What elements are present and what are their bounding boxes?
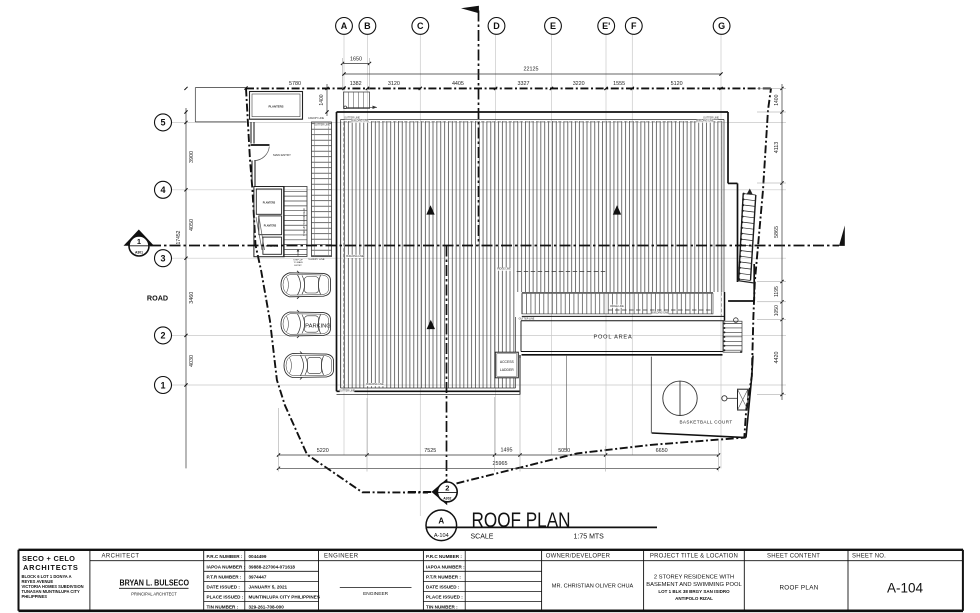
svg-text:17452: 17452 [176, 230, 182, 244]
svg-text:1: 1 [160, 380, 165, 390]
svg-text:6650: 6650 [656, 448, 668, 454]
svg-text:ROAD: ROAD [147, 294, 168, 303]
svg-text:A: A [341, 21, 348, 31]
svg-text:2: 2 [445, 483, 449, 492]
svg-text:ENTRY: ENTRY [294, 265, 302, 267]
svg-text:3: 3 [160, 254, 165, 264]
svg-text:3327: 3327 [518, 81, 530, 87]
svg-text:5780: 5780 [289, 81, 301, 87]
svg-text:TO MAIN: TO MAIN [293, 261, 302, 264]
svg-text:E': E' [602, 21, 610, 31]
svg-text:0044499: 0044499 [249, 554, 267, 559]
svg-text:3900: 3900 [189, 151, 195, 163]
svg-text:E: E [550, 21, 556, 31]
svg-text:TIN NUMBER :: TIN NUMBER : [426, 605, 458, 610]
svg-text:IAPOA NUMBER :: IAPOA NUMBER : [426, 564, 465, 569]
svg-text:F: F [631, 21, 637, 31]
svg-text:GUTTER LINE: GUTTER LINE [314, 124, 330, 127]
svg-text:A: A [438, 516, 444, 525]
svg-text:PARKING: PARKING [305, 324, 331, 330]
svg-text:TIN NUMBER :: TIN NUMBER : [207, 605, 239, 610]
svg-text:39888-227004-071618: 39888-227004-071618 [249, 564, 296, 569]
svg-text:C: C [417, 21, 424, 31]
svg-text:ARCHITECTS: ARCHITECTS [23, 563, 79, 572]
svg-text:BUILDING LINE: BUILDING LINE [366, 383, 384, 386]
svg-text:MAIN ENTRY: MAIN ENTRY [273, 153, 291, 157]
svg-text:3974447: 3974447 [249, 574, 267, 579]
svg-text:4420: 4420 [774, 352, 780, 364]
svg-text:IAPOA NUMBER :: IAPOA NUMBER : [207, 564, 246, 569]
svg-text:SCALE: SCALE [471, 534, 494, 541]
svg-text:POOL AREA: POOL AREA [593, 334, 632, 340]
svg-text:ENGINEER: ENGINEER [363, 591, 389, 597]
svg-text:4030: 4030 [189, 355, 195, 367]
svg-text:1: 1 [137, 237, 141, 246]
svg-text:STEP-UP TO ROOF DECK: STEP-UP TO ROOF DECK [304, 208, 306, 236]
svg-text:ARCHITECT: ARCHITECT [102, 554, 140, 560]
svg-text:GUTTER LINE: GUTTER LINE [339, 390, 355, 393]
svg-text:JANUARY 5, 2021: JANUARY 5, 2021 [249, 585, 288, 590]
svg-text:2 STOREY RESIDENCE WITH: 2 STOREY RESIDENCE WITH [654, 575, 734, 581]
svg-text:PLANTERS: PLANTERS [263, 202, 276, 205]
svg-text:PLANTERS: PLANTERS [268, 105, 283, 109]
svg-text:3460: 3460 [189, 292, 195, 304]
svg-text:PLANTERS: PLANTERS [264, 225, 277, 228]
svg-text:SHEET NO.: SHEET NO. [852, 554, 886, 560]
svg-text:OWNER/DEVELOPER: OWNER/DEVELOPER [546, 554, 611, 560]
svg-text:D: D [493, 21, 500, 31]
svg-text:B: B [364, 21, 371, 31]
svg-text:1:75 MTS: 1:75 MTS [574, 534, 605, 541]
svg-text:CANOPY LINE: CANOPY LINE [308, 117, 324, 120]
svg-text:ANTIPOLO RIZAL: ANTIPOLO RIZAL [675, 596, 713, 601]
svg-text:LADDER: LADDER [500, 368, 514, 372]
svg-text:G: G [718, 21, 725, 31]
svg-text:7525: 7525 [424, 448, 436, 454]
svg-text:P.R.C NUMBER :: P.R.C NUMBER : [426, 554, 462, 559]
svg-text:ROOF PLAN: ROOF PLAN [472, 508, 571, 532]
svg-text:GUTTER LINE: GUTTER LINE [519, 317, 535, 320]
svg-text:BUILDING LINE: BUILDING LINE [351, 120, 369, 123]
svg-text:MR. CHRISTIAN OLIVER CHUA: MR. CHRISTIAN OLIVER CHUA [552, 584, 634, 590]
svg-text:1400: 1400 [319, 94, 325, 105]
svg-text:PLACE ISSUED :: PLACE ISSUED : [426, 595, 463, 600]
svg-text:329-261-708-000: 329-261-708-000 [249, 605, 285, 610]
svg-text:BUILDING LINE: BUILDING LINE [651, 312, 669, 315]
svg-text:4405: 4405 [452, 81, 464, 87]
svg-text:RIDGE LINE: RIDGE LINE [610, 305, 624, 308]
svg-text:P.T.R NUMBER :: P.T.R NUMBER : [426, 574, 461, 579]
svg-text:4: 4 [160, 185, 165, 195]
svg-text:STEP-UP: STEP-UP [293, 259, 303, 261]
svg-text:PRINCIPAL ARCHITECT: PRINCIPAL ARCHITECT [131, 591, 177, 596]
svg-text:BUILDING LINE: BUILDING LINE [696, 120, 714, 123]
svg-text:CANOPY LINE: CANOPY LINE [308, 258, 324, 261]
svg-text:A-104: A-104 [434, 533, 449, 539]
svg-text:MUNTINLUPA CITY PHILIPPINES: MUNTINLUPA CITY PHILIPPINES [249, 595, 320, 600]
svg-text:DATE ISSUED :: DATE ISSUED : [426, 585, 460, 590]
svg-text:A301: A301 [135, 251, 143, 255]
svg-text:SHEET CONTENT: SHEET CONTENT [767, 554, 820, 560]
svg-text:ACCESS: ACCESS [500, 360, 515, 364]
svg-text:1195: 1195 [774, 286, 780, 297]
svg-text:ENGINEER: ENGINEER [324, 554, 359, 560]
svg-text:5220: 5220 [317, 448, 329, 454]
svg-text:PLACE ISSUED :: PLACE ISSUED : [207, 595, 244, 600]
svg-text:4113: 4113 [774, 142, 780, 154]
svg-text:1650: 1650 [350, 57, 362, 63]
svg-text:RIDGE LINE: RIDGE LINE [497, 268, 511, 271]
svg-text:4050: 4050 [189, 219, 195, 231]
svg-text:ROOF PLAN: ROOF PLAN [779, 585, 818, 592]
svg-text:DATE ISSUED :: DATE ISSUED : [207, 585, 241, 590]
svg-text:5050: 5050 [558, 448, 570, 454]
svg-text:3120: 3120 [388, 81, 400, 87]
svg-text:BRYAN L. BULSECO: BRYAN L. BULSECO [120, 579, 190, 588]
svg-text:LOT 1 BLK 38 BRGY SAN ISIDRO: LOT 1 BLK 38 BRGY SAN ISIDRO [658, 589, 730, 594]
svg-text:A-104: A-104 [887, 581, 924, 596]
svg-text:1382: 1382 [350, 81, 362, 87]
svg-text:1050: 1050 [774, 305, 780, 316]
svg-text:3220: 3220 [573, 81, 585, 87]
svg-text:A302: A302 [443, 497, 451, 501]
svg-text:1400: 1400 [774, 94, 780, 105]
svg-text:2: 2 [160, 331, 165, 341]
svg-text:22125: 22125 [524, 67, 539, 73]
svg-text:5120: 5120 [671, 81, 683, 87]
svg-text:1555: 1555 [613, 81, 625, 87]
svg-text:P.R.C NUMBER :: P.R.C NUMBER : [207, 554, 243, 559]
svg-text:PROJECT TITLE & LOCATION: PROJECT TITLE & LOCATION [650, 554, 738, 560]
svg-text:5865: 5865 [774, 226, 780, 238]
svg-text:5: 5 [160, 118, 165, 128]
svg-text:P.T.R NUMBER :: P.T.R NUMBER : [207, 574, 242, 579]
svg-text:SECO + CELO: SECO + CELO [22, 554, 75, 563]
svg-text:1495: 1495 [501, 447, 513, 453]
svg-text:PHILIPPINES: PHILIPPINES [22, 594, 48, 599]
svg-text:BASKETBALL COURT: BASKETBALL COURT [679, 420, 732, 425]
svg-text:BUILDING LINE: BUILDING LINE [346, 255, 364, 258]
svg-text:BASEMENT AND SWIMMING POOL: BASEMENT AND SWIMMING POOL [646, 582, 742, 588]
